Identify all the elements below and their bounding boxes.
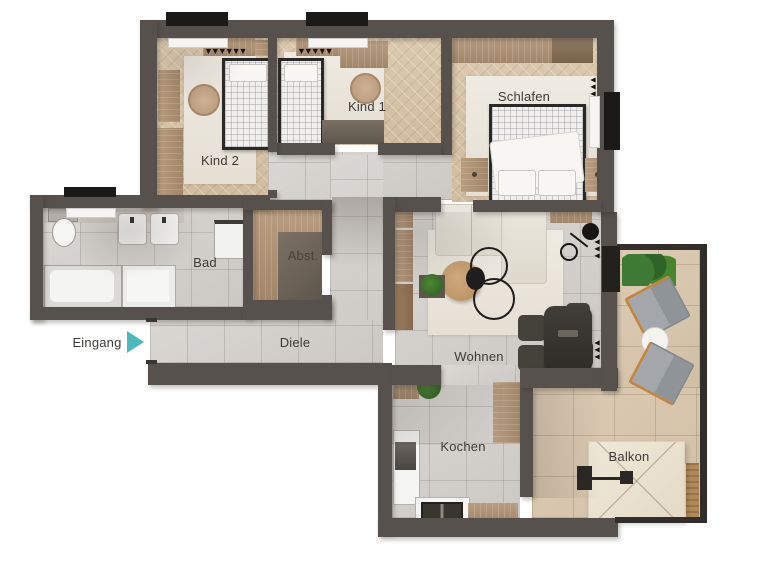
dining-table <box>544 306 592 374</box>
wall-abst-south <box>243 300 332 320</box>
sink-right <box>150 213 179 245</box>
entry-jamb-bottom <box>146 360 157 364</box>
wall-kind1-south-left <box>277 143 335 155</box>
kind2-desk <box>158 70 180 122</box>
nightstand-left <box>461 158 488 192</box>
plant-icon <box>421 274 443 296</box>
wall-kind-divider-stub <box>268 190 277 198</box>
sink-left <box>118 213 147 245</box>
floor-plan: ▼▼▼▼▼▼ ▼▼▼▼▼ ▼▼▼ ▼▼ <box>0 0 768 576</box>
wall-kind-divider <box>268 36 277 152</box>
sun-lounger-frame <box>686 463 699 517</box>
bathtub-basin <box>50 270 114 302</box>
room-label-diele: Diele <box>265 336 325 350</box>
wall-bad-south <box>30 307 243 320</box>
railing-right <box>700 244 707 523</box>
dining-chair <box>518 315 546 341</box>
railing-bottom <box>615 517 707 523</box>
window-sill <box>66 208 116 218</box>
table-decor <box>558 330 578 337</box>
window-bad <box>64 187 116 197</box>
parasol-arm <box>590 477 622 480</box>
wohnen-cabinet-west-upper <box>394 230 413 282</box>
window-sill <box>589 96 600 148</box>
wall-schlafen-west <box>441 36 452 155</box>
wall-kochen-west <box>378 385 392 533</box>
room-label-abst: Abst. <box>281 249 325 263</box>
room-label-kochen: Kochen <box>423 440 503 454</box>
kind1-bed <box>278 58 324 150</box>
faucet-icon <box>130 217 134 223</box>
railing-top <box>617 244 701 250</box>
wall-west-upper <box>140 20 157 208</box>
schlafen-pillow-left <box>498 170 536 196</box>
window-kind1 <box>306 12 368 26</box>
wall-south <box>378 518 618 537</box>
faucet-icon <box>162 217 166 223</box>
room-label-kind1: Kind 1 <box>327 100 407 114</box>
room-label-balkon: Balkon <box>589 450 669 464</box>
kind2-pillow <box>229 64 267 82</box>
room-label-wohnen: Wohnen <box>439 350 519 364</box>
kind2-chair <box>188 84 220 116</box>
schlafen-pillow-right <box>538 170 576 196</box>
room-label-bad: Bad <box>185 256 225 270</box>
abst-floor <box>278 232 322 300</box>
wall-wohnen-east <box>601 212 617 391</box>
toilet-bowl <box>52 218 76 247</box>
wall-corridor-wohnen <box>383 197 395 330</box>
window-sill <box>308 38 368 48</box>
wohnen-cabinet-west-lower <box>394 284 413 330</box>
wall-kochen-north <box>392 365 441 385</box>
side-table-dark <box>466 267 485 290</box>
wall-kochen-balkon-divider <box>520 388 533 497</box>
cooktop <box>395 442 416 470</box>
floor-lamp-base <box>560 243 578 261</box>
kind2-bed <box>222 58 274 150</box>
entrance-label: Eingang <box>57 336 137 350</box>
fridge-column <box>493 382 520 443</box>
shower <box>122 265 176 309</box>
wall-abst-east-upper <box>322 200 332 255</box>
wall-diele-south <box>148 363 392 385</box>
washing-machine <box>214 220 246 259</box>
window-schlafen <box>604 92 620 150</box>
schlafen-wardrobe-dark <box>552 38 593 63</box>
parasol-pole <box>620 471 633 484</box>
shower-tray <box>127 270 169 302</box>
bathtub <box>44 265 122 309</box>
kind2-wardrobe-rail-icon: ▼▼▼▼▼▼ <box>204 47 254 56</box>
entry-jamb-top <box>146 318 157 322</box>
sofa-chaise <box>501 204 547 284</box>
kind1-dresser <box>322 120 384 144</box>
room-label-kind2: Kind 2 <box>180 154 260 168</box>
kind1-pillow <box>284 64 318 82</box>
room-label-schlafen: Schlafen <box>484 90 564 104</box>
nightstand-knob-icon <box>472 172 477 177</box>
kind1-wardrobe-rail-icon: ▼▼▼▼▼ <box>297 47 341 56</box>
window-kind2 <box>166 12 228 26</box>
wall-abst-north <box>243 200 332 210</box>
wall-kind1-south-right <box>378 143 441 155</box>
wall-bad-west <box>30 195 43 320</box>
balkon-door <box>602 246 620 292</box>
wall-schlafen-south-east <box>473 200 601 212</box>
window-sill <box>168 38 228 48</box>
